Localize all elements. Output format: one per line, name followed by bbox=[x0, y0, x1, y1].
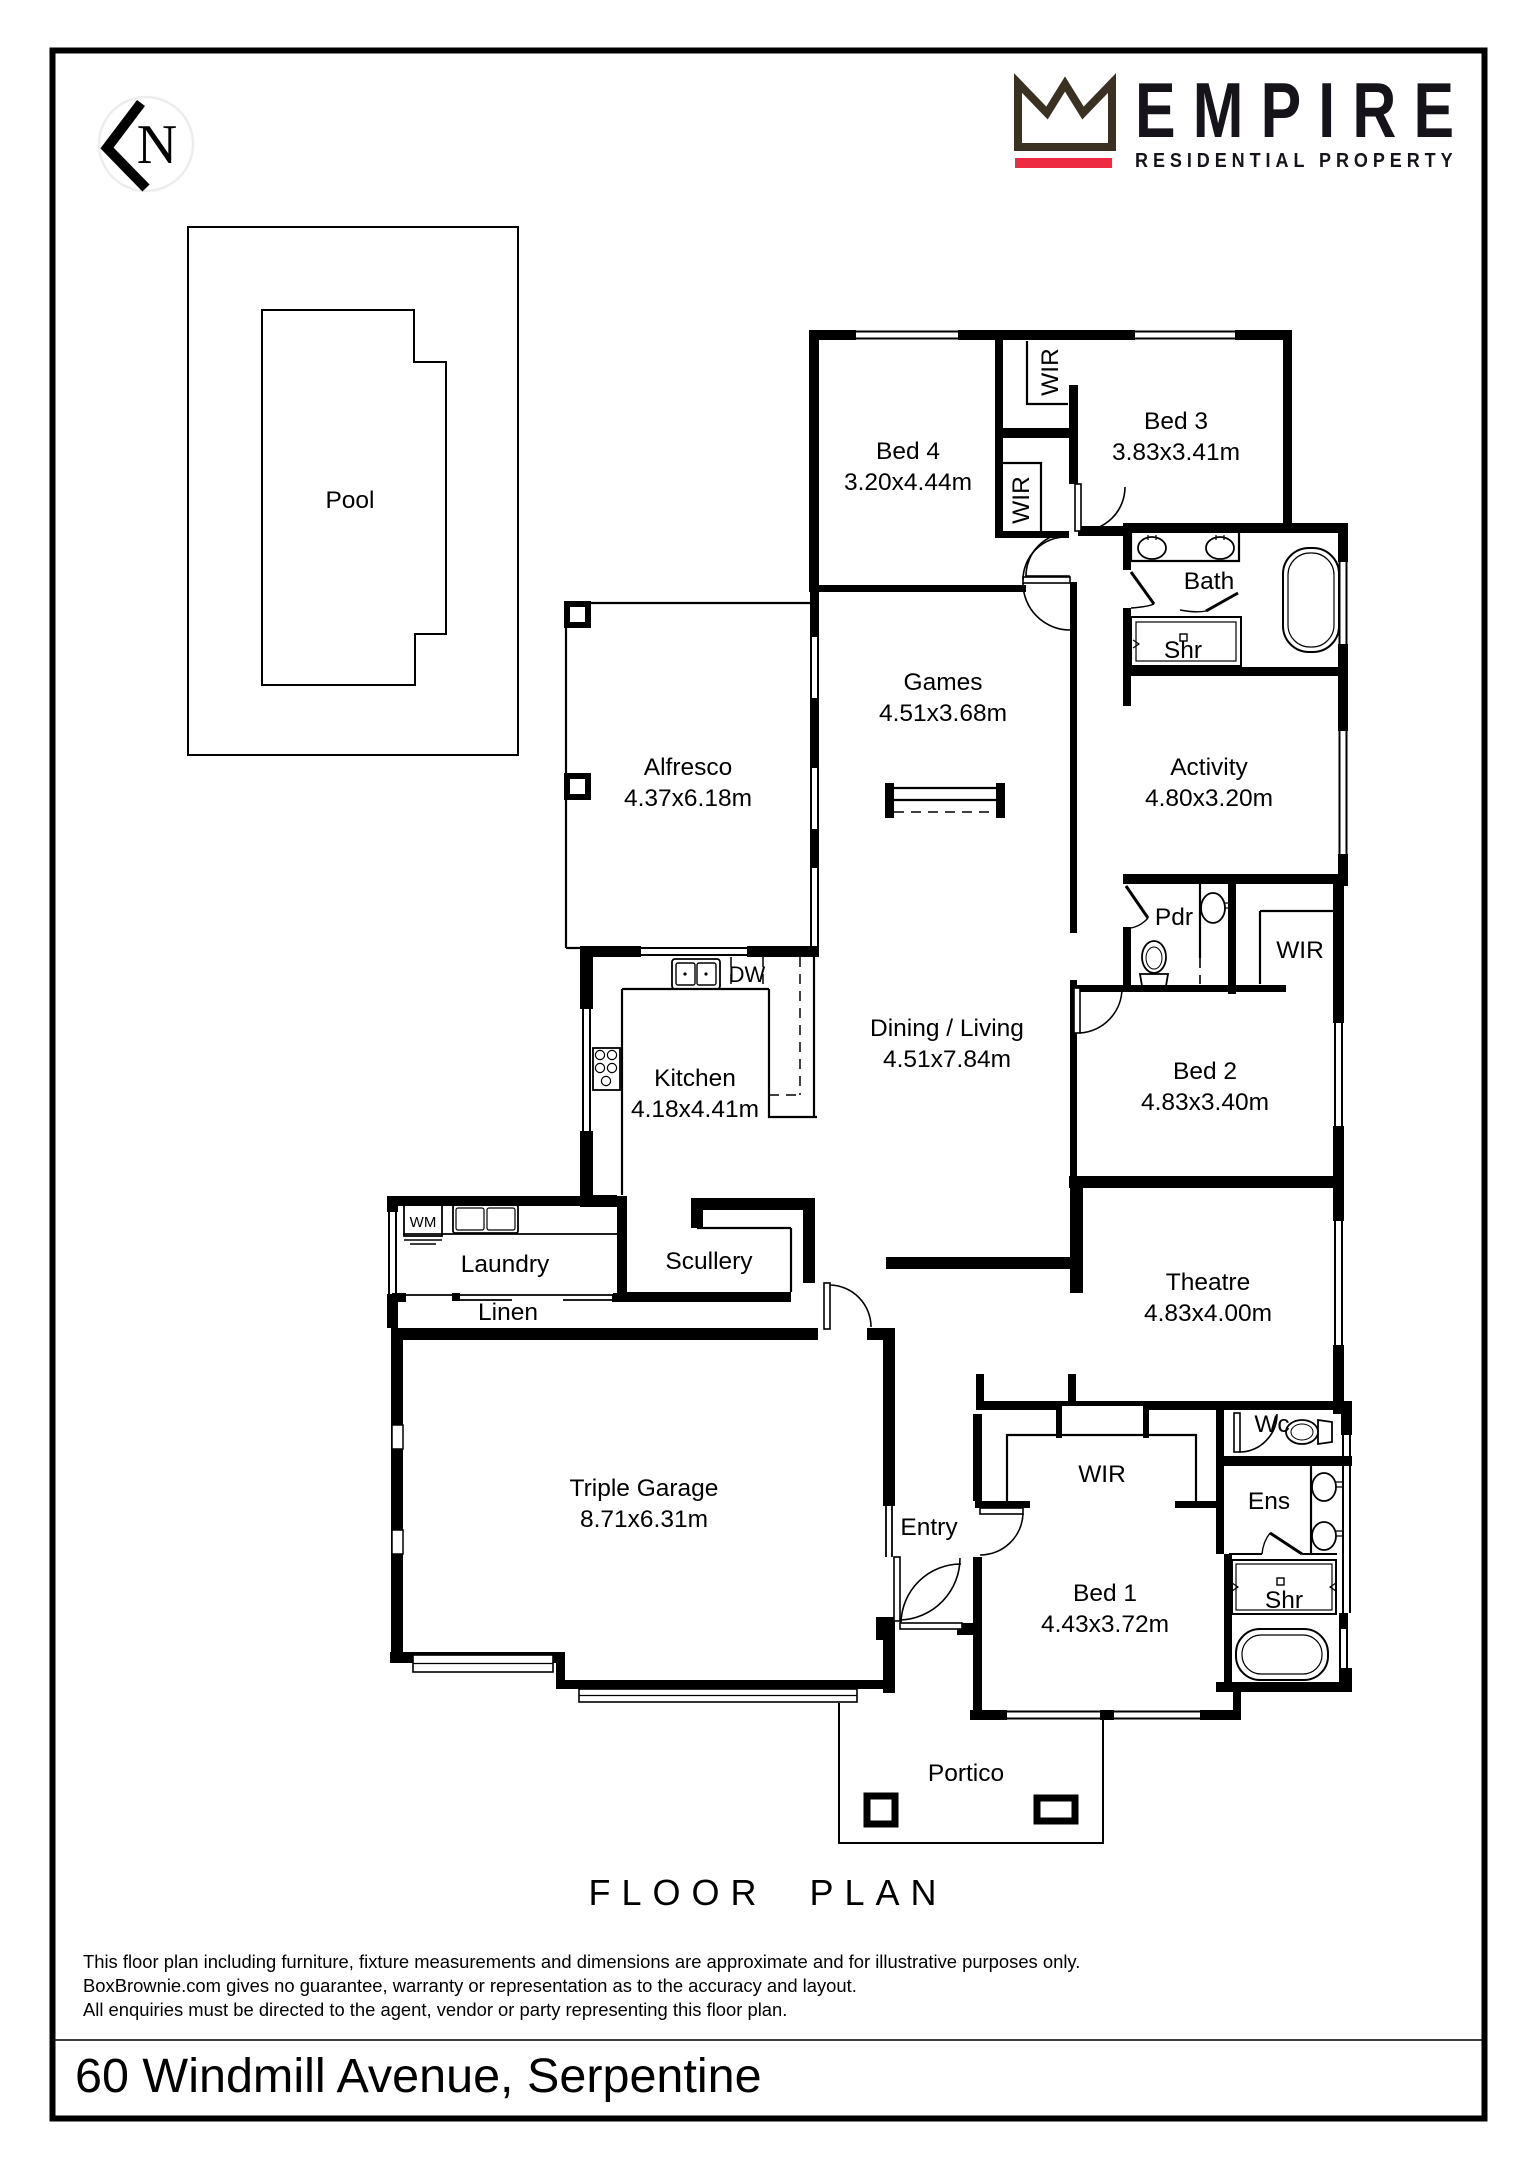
svg-text:WM: WM bbox=[410, 1214, 437, 1231]
svg-text:WIR: WIR bbox=[1008, 476, 1035, 524]
svg-text:Bath: Bath bbox=[1184, 568, 1234, 595]
svg-text:Shr: Shr bbox=[1265, 1587, 1303, 1614]
svg-text:4.83x4.00m: 4.83x4.00m bbox=[1144, 1300, 1272, 1327]
svg-text:Bed 2: Bed 2 bbox=[1173, 1058, 1237, 1085]
svg-text:Bed 3: Bed 3 bbox=[1144, 408, 1208, 435]
svg-text:Dining / Living: Dining / Living bbox=[870, 1015, 1024, 1042]
svg-text:Shr: Shr bbox=[1164, 637, 1202, 664]
svg-text:This floor plan including furn: This floor plan including furniture, fix… bbox=[83, 1951, 1080, 1972]
svg-text:FLOOR PLAN: FLOOR PLAN bbox=[588, 1872, 947, 1913]
svg-text:Scullery: Scullery bbox=[665, 1248, 753, 1275]
svg-text:Kitchen: Kitchen bbox=[654, 1065, 736, 1092]
svg-text:WIR: WIR bbox=[1037, 348, 1064, 396]
svg-text:Triple Garage: Triple Garage bbox=[570, 1475, 719, 1502]
svg-text:4.83x3.40m: 4.83x3.40m bbox=[1141, 1089, 1269, 1116]
svg-text:Pdr: Pdr bbox=[1155, 904, 1193, 931]
svg-text:Linen: Linen bbox=[478, 1299, 538, 1326]
svg-text:4.51x3.68m: 4.51x3.68m bbox=[879, 700, 1007, 727]
svg-text:WIR: WIR bbox=[1078, 1461, 1126, 1488]
svg-text:Portico: Portico bbox=[928, 1760, 1004, 1787]
svg-text:4.37x6.18m: 4.37x6.18m bbox=[624, 785, 752, 812]
svg-text:Bed 4: Bed 4 bbox=[876, 438, 940, 465]
svg-text:Laundry: Laundry bbox=[461, 1251, 550, 1278]
svg-text:8.71x6.31m: 8.71x6.31m bbox=[580, 1506, 708, 1533]
svg-text:60 Windmill Avenue, Serpentine: 60 Windmill Avenue, Serpentine bbox=[75, 2049, 762, 2103]
svg-text:Theatre: Theatre bbox=[1166, 1269, 1250, 1296]
svg-text:DW: DW bbox=[729, 962, 766, 987]
svg-text:Entry: Entry bbox=[900, 1514, 958, 1541]
svg-text:3.20x4.44m: 3.20x4.44m bbox=[844, 469, 972, 496]
svg-text:RESIDENTIAL PROPERTY: RESIDENTIAL PROPERTY bbox=[1135, 150, 1458, 172]
svg-text:Activity: Activity bbox=[1170, 754, 1248, 781]
svg-text:Bed 1: Bed 1 bbox=[1073, 1580, 1137, 1607]
svg-text:Games: Games bbox=[904, 669, 983, 696]
svg-text:Ens: Ens bbox=[1248, 1488, 1290, 1515]
svg-text:All enquiries must be directed: All enquiries must be directed to the ag… bbox=[83, 1999, 787, 2020]
svg-text:N: N bbox=[137, 114, 177, 176]
svg-text:BoxBrownie.com gives no guaran: BoxBrownie.com gives no guarantee, warra… bbox=[83, 1975, 857, 1996]
svg-text:4.43x3.72m: 4.43x3.72m bbox=[1041, 1611, 1169, 1638]
svg-text:Pool: Pool bbox=[325, 487, 374, 514]
svg-text:Alfresco: Alfresco bbox=[644, 754, 733, 781]
svg-text:EMPIRE: EMPIRE bbox=[1135, 67, 1471, 154]
svg-text:4.51x7.84m: 4.51x7.84m bbox=[883, 1046, 1011, 1073]
svg-text:Wc: Wc bbox=[1254, 1411, 1289, 1438]
svg-text:4.18x4.41m: 4.18x4.41m bbox=[631, 1096, 759, 1123]
svg-text:4.80x3.20m: 4.80x3.20m bbox=[1145, 785, 1273, 812]
svg-text:3.83x3.41m: 3.83x3.41m bbox=[1112, 439, 1240, 466]
svg-text:WIR: WIR bbox=[1276, 937, 1324, 964]
